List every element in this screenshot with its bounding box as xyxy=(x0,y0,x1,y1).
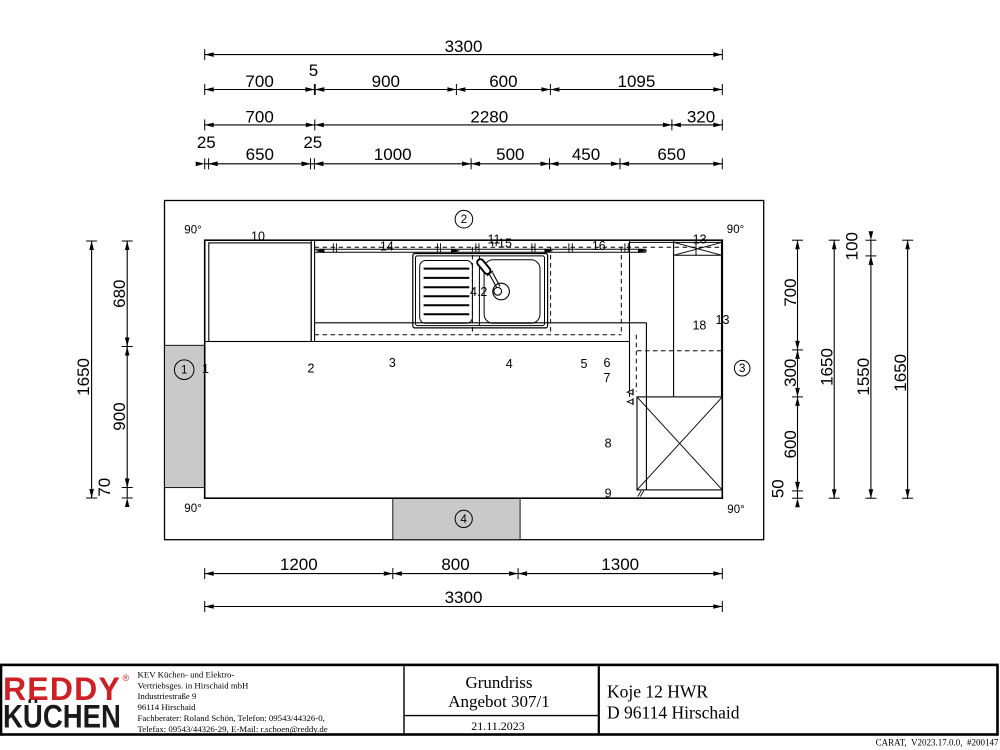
svg-text:1: 1 xyxy=(181,365,187,377)
svg-text:96114 Hirschaid: 96114 Hirschaid xyxy=(138,702,197,712)
svg-text:Koje 12 HWR: Koje 12 HWR xyxy=(607,682,708,702)
svg-text:90°: 90° xyxy=(727,504,744,516)
svg-text:1550: 1550 xyxy=(854,358,873,396)
svg-text:7: 7 xyxy=(604,371,611,385)
svg-text:600: 600 xyxy=(489,72,517,91)
svg-text:3300: 3300 xyxy=(445,588,483,607)
svg-text:100: 100 xyxy=(843,232,862,260)
svg-text:800: 800 xyxy=(441,555,469,574)
svg-text:50: 50 xyxy=(769,479,788,498)
svg-text:700: 700 xyxy=(245,107,273,126)
svg-text:3: 3 xyxy=(739,363,745,375)
svg-text:8: 8 xyxy=(605,436,612,450)
svg-text:700: 700 xyxy=(781,278,800,306)
svg-text:90°: 90° xyxy=(184,503,201,515)
svg-text:90°: 90° xyxy=(184,225,201,237)
svg-text:5: 5 xyxy=(581,357,588,371)
svg-text:CARAT, V2023.17.0.0, #200147: CARAT, V2023.17.0.0, #200147 xyxy=(876,738,999,748)
svg-text:1650: 1650 xyxy=(74,358,93,396)
svg-text:300: 300 xyxy=(781,359,800,387)
svg-text:Grundriss: Grundriss xyxy=(465,673,532,692)
svg-text:900: 900 xyxy=(110,402,129,430)
svg-text:13: 13 xyxy=(716,313,730,327)
svg-text:D 96114 Hirschaid: D 96114 Hirschaid xyxy=(607,703,740,723)
svg-text:680: 680 xyxy=(110,280,129,308)
svg-text:600: 600 xyxy=(781,430,800,458)
svg-text:25: 25 xyxy=(303,133,322,152)
svg-text:450: 450 xyxy=(572,145,600,164)
svg-text:Vertriebsges. in Hirschaid mbH: Vertriebsges. in Hirschaid mbH xyxy=(138,680,250,690)
svg-text:1650: 1650 xyxy=(818,348,837,386)
svg-text:1000: 1000 xyxy=(374,145,412,164)
svg-text:9: 9 xyxy=(605,487,612,501)
svg-text:Fachberater: Roland Schön, Tel: Fachberater: Roland Schön, Telefon: 0954… xyxy=(138,713,325,723)
svg-text:4.2: 4.2 xyxy=(470,285,487,299)
svg-text:KEV Küchen- und Elektro-: KEV Küchen- und Elektro- xyxy=(138,670,235,680)
svg-text:1300: 1300 xyxy=(601,555,639,574)
svg-text:18: 18 xyxy=(692,318,706,332)
svg-text:6: 6 xyxy=(604,356,611,370)
svg-text:3300: 3300 xyxy=(445,37,483,56)
svg-text:650: 650 xyxy=(246,145,274,164)
svg-text:4: 4 xyxy=(506,357,513,371)
svg-text:70: 70 xyxy=(95,478,114,497)
svg-text:2280: 2280 xyxy=(470,107,508,126)
svg-text:320: 320 xyxy=(687,107,715,126)
svg-text:Angebot 307/1: Angebot 307/1 xyxy=(448,692,550,711)
svg-text:16: 16 xyxy=(592,239,606,253)
svg-text:1650: 1650 xyxy=(891,354,910,392)
svg-text:500: 500 xyxy=(496,145,524,164)
svg-text:Industriestraße 9: Industriestraße 9 xyxy=(138,691,197,701)
svg-text:1095: 1095 xyxy=(617,72,655,91)
svg-text:4: 4 xyxy=(460,514,467,526)
svg-text:21.11.2023: 21.11.2023 xyxy=(471,719,525,733)
svg-text:2: 2 xyxy=(461,214,467,226)
svg-text:2: 2 xyxy=(308,361,315,375)
svg-text:11: 11 xyxy=(488,232,501,246)
svg-text:10: 10 xyxy=(251,230,265,244)
svg-text:14: 14 xyxy=(380,240,394,254)
svg-text:25: 25 xyxy=(197,133,216,152)
svg-text:Telefax: 09543/44326-29, E-Mai: Telefax: 09543/44326-29, E-Mail: r.schoe… xyxy=(138,724,328,734)
svg-text:3: 3 xyxy=(389,356,396,370)
svg-text:1200: 1200 xyxy=(280,555,318,574)
svg-text:900: 900 xyxy=(372,72,400,91)
svg-text:650: 650 xyxy=(657,145,685,164)
svg-text:KÜCHEN: KÜCHEN xyxy=(3,700,121,735)
svg-text:90°: 90° xyxy=(727,224,744,236)
svg-text:5: 5 xyxy=(309,61,318,80)
svg-text:700: 700 xyxy=(245,72,273,91)
svg-text:1: 1 xyxy=(202,362,209,376)
svg-text:13: 13 xyxy=(693,233,707,247)
svg-text:®: ® xyxy=(123,673,130,683)
